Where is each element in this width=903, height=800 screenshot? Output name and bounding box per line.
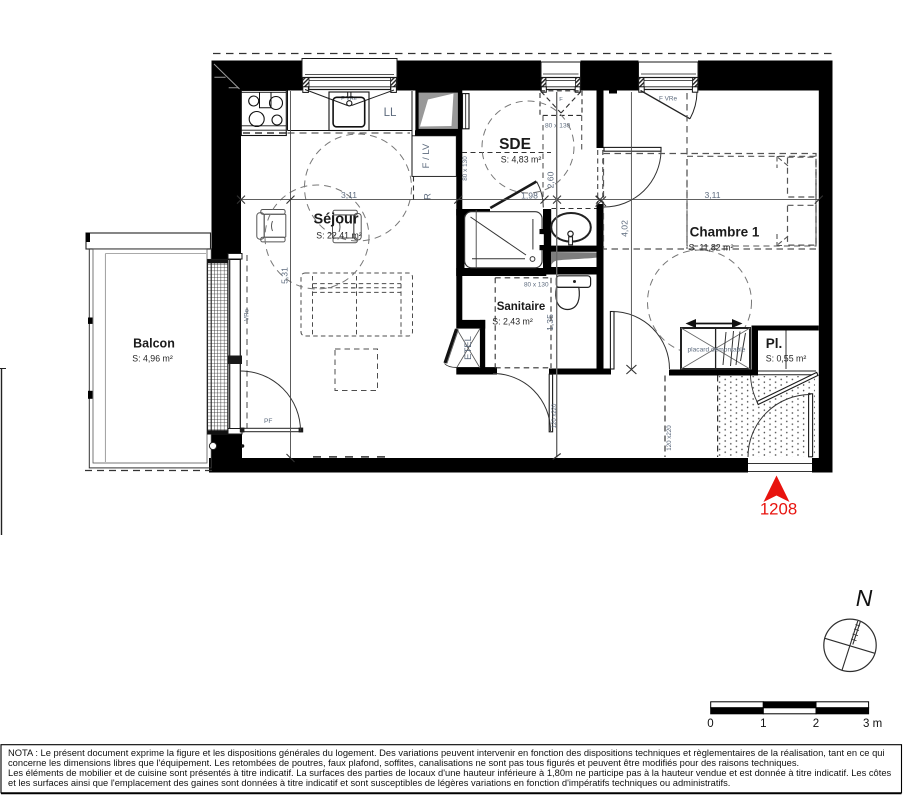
- svg-text:N: N: [856, 585, 873, 611]
- svg-text:1,98: 1,98: [521, 191, 538, 201]
- svg-text:ETEL: ETEL: [463, 336, 474, 360]
- svg-text:Pl.: Pl.: [766, 336, 783, 351]
- svg-text:concerne les dimensions libres: concerne les dimensions libres que l'équ…: [8, 758, 799, 768]
- svg-text:80 x 130: 80 x 130: [524, 282, 549, 289]
- svg-text:S: 4,83 m²: S: 4,83 m²: [501, 155, 542, 165]
- svg-text:Balcon: Balcon: [133, 337, 175, 351]
- svg-text:5,31: 5,31: [280, 267, 290, 284]
- svg-text:placard démontable: placard démontable: [688, 347, 746, 354]
- svg-text:0: 0: [707, 718, 713, 730]
- svg-text:F: F: [559, 97, 563, 103]
- svg-text:S: 22,41 m²: S: 22,41 m²: [316, 231, 362, 241]
- svg-text:2: 2: [813, 718, 819, 730]
- svg-text:F / LV: F / LV: [421, 143, 432, 168]
- svg-text:120 x220: 120 x220: [666, 425, 673, 451]
- svg-text:3,11: 3,11: [341, 190, 357, 200]
- svg-text:1208: 1208: [760, 500, 797, 519]
- svg-text:4,02: 4,02: [620, 220, 630, 237]
- svg-text:VRe: VRe: [244, 308, 251, 321]
- svg-text:et les surfaces ainsi que l'em: et les surfaces ainsi que l'emplacement …: [8, 778, 730, 788]
- svg-text:S: 2,43 m²: S: 2,43 m²: [492, 317, 533, 327]
- svg-text:SDE: SDE: [499, 136, 531, 153]
- svg-text:Les éléments de mobilier et de: Les éléments de mobilier et de cuisine s…: [8, 768, 892, 778]
- svg-text:LL: LL: [384, 107, 397, 119]
- svg-text:Sanitaire: Sanitaire: [497, 301, 546, 313]
- svg-text:S: 4,96 m²: S: 4,96 m²: [132, 354, 173, 364]
- svg-text:NOTA : Le présent document exp: NOTA : Le présent document exprime la fi…: [8, 748, 885, 758]
- svg-text:80 x 130: 80 x 130: [545, 123, 571, 130]
- svg-text:80 x 130: 80 x 130: [462, 156, 469, 181]
- svg-text:1: 1: [760, 718, 766, 730]
- svg-text:F VRe: F VRe: [659, 96, 678, 103]
- svg-text:2,60: 2,60: [546, 171, 556, 188]
- svg-text:S: 0,55 m²: S: 0,55 m²: [766, 354, 807, 364]
- svg-text:R: R: [423, 193, 434, 200]
- svg-text:S: 11,82 m²: S: 11,82 m²: [689, 243, 734, 253]
- svg-text:1,35: 1,35: [545, 314, 555, 331]
- svg-text:3,11: 3,11: [704, 190, 720, 200]
- svg-text:Chambre 1: Chambre 1: [690, 225, 760, 240]
- svg-text:PF: PF: [264, 418, 272, 425]
- svg-text:Séjour: Séjour: [313, 212, 358, 228]
- svg-text:3 m: 3 m: [863, 718, 882, 730]
